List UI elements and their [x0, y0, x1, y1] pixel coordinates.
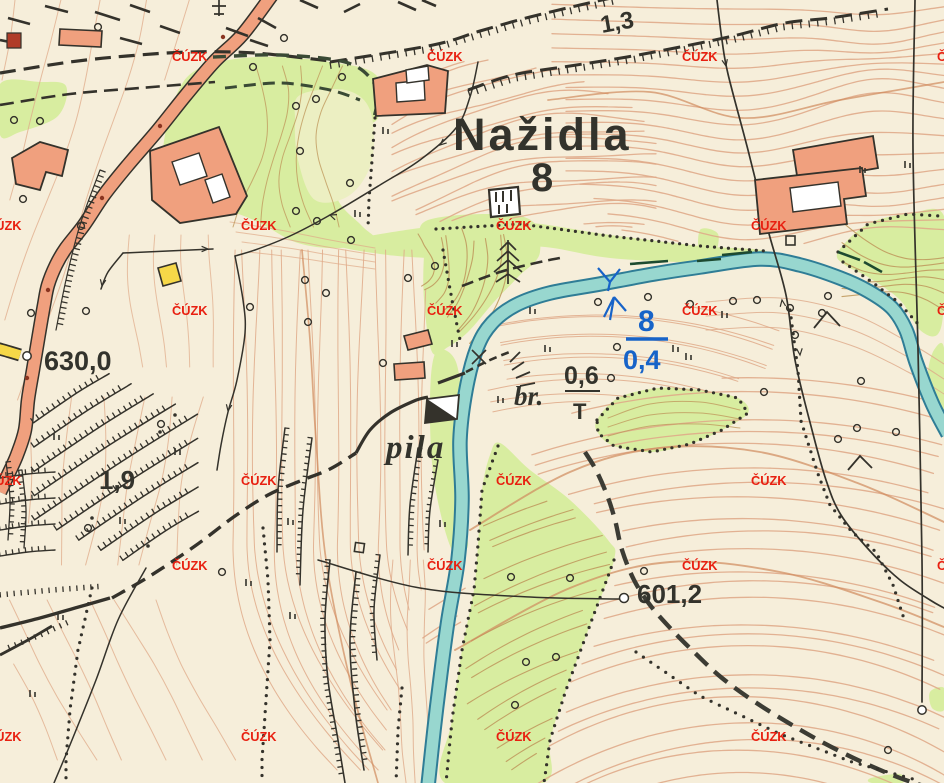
svg-text:ČÚZK: ČÚZK [241, 473, 277, 488]
svg-text:8: 8 [531, 156, 553, 200]
svg-text:Nažidla: Nažidla [453, 109, 632, 160]
svg-text:ČÚZK: ČÚZK [427, 49, 463, 64]
svg-text:ČÚZK: ČÚZK [0, 218, 22, 233]
svg-text:630,0: 630,0 [44, 346, 112, 376]
svg-text:ČÚZK: ČÚZK [241, 729, 277, 744]
svg-text:ČÚZK: ČÚZK [427, 303, 463, 318]
svg-text:ČÚZK: ČÚZK [172, 558, 208, 573]
svg-text:ČÚZK: ČÚZK [241, 218, 277, 233]
svg-text:ČÚZK: ČÚZK [682, 303, 718, 318]
svg-text:ČÚZK: ČÚZK [496, 729, 532, 744]
svg-text:pila: pila [383, 430, 445, 466]
svg-text:8: 8 [638, 305, 655, 338]
svg-text:ČÚZK: ČÚZK [751, 729, 787, 744]
svg-text:ČÚZK: ČÚZK [496, 218, 532, 233]
svg-text:ČÚZK: ČÚZK [496, 473, 532, 488]
svg-text:ČÚZK: ČÚZK [682, 558, 718, 573]
svg-text:ČÚZK: ČÚZK [172, 49, 208, 64]
svg-text:ČÚZK: ČÚZK [751, 473, 787, 488]
svg-text:ČÚZK: ČÚZK [0, 729, 22, 744]
svg-text:ČÚZK: ČÚZK [937, 303, 944, 318]
svg-text:ČÚZK: ČÚZK [937, 49, 944, 64]
svg-text:ČÚZK: ČÚZK [172, 303, 208, 318]
svg-text:ČÚZK: ČÚZK [427, 558, 463, 573]
svg-text:1,9: 1,9 [99, 465, 135, 495]
svg-text:1,3: 1,3 [598, 7, 636, 39]
svg-text:ČÚZK: ČÚZK [751, 218, 787, 233]
svg-text:0,4: 0,4 [623, 345, 661, 375]
svg-text:601,2: 601,2 [637, 579, 702, 609]
svg-text:br.: br. [514, 381, 543, 411]
svg-text:ČÚZK: ČÚZK [0, 473, 22, 488]
svg-text:ČÚZK: ČÚZK [682, 49, 718, 64]
svg-text:0,6: 0,6 [564, 362, 599, 390]
svg-text:T: T [573, 399, 587, 424]
svg-text:ČÚZK: ČÚZK [937, 558, 944, 573]
